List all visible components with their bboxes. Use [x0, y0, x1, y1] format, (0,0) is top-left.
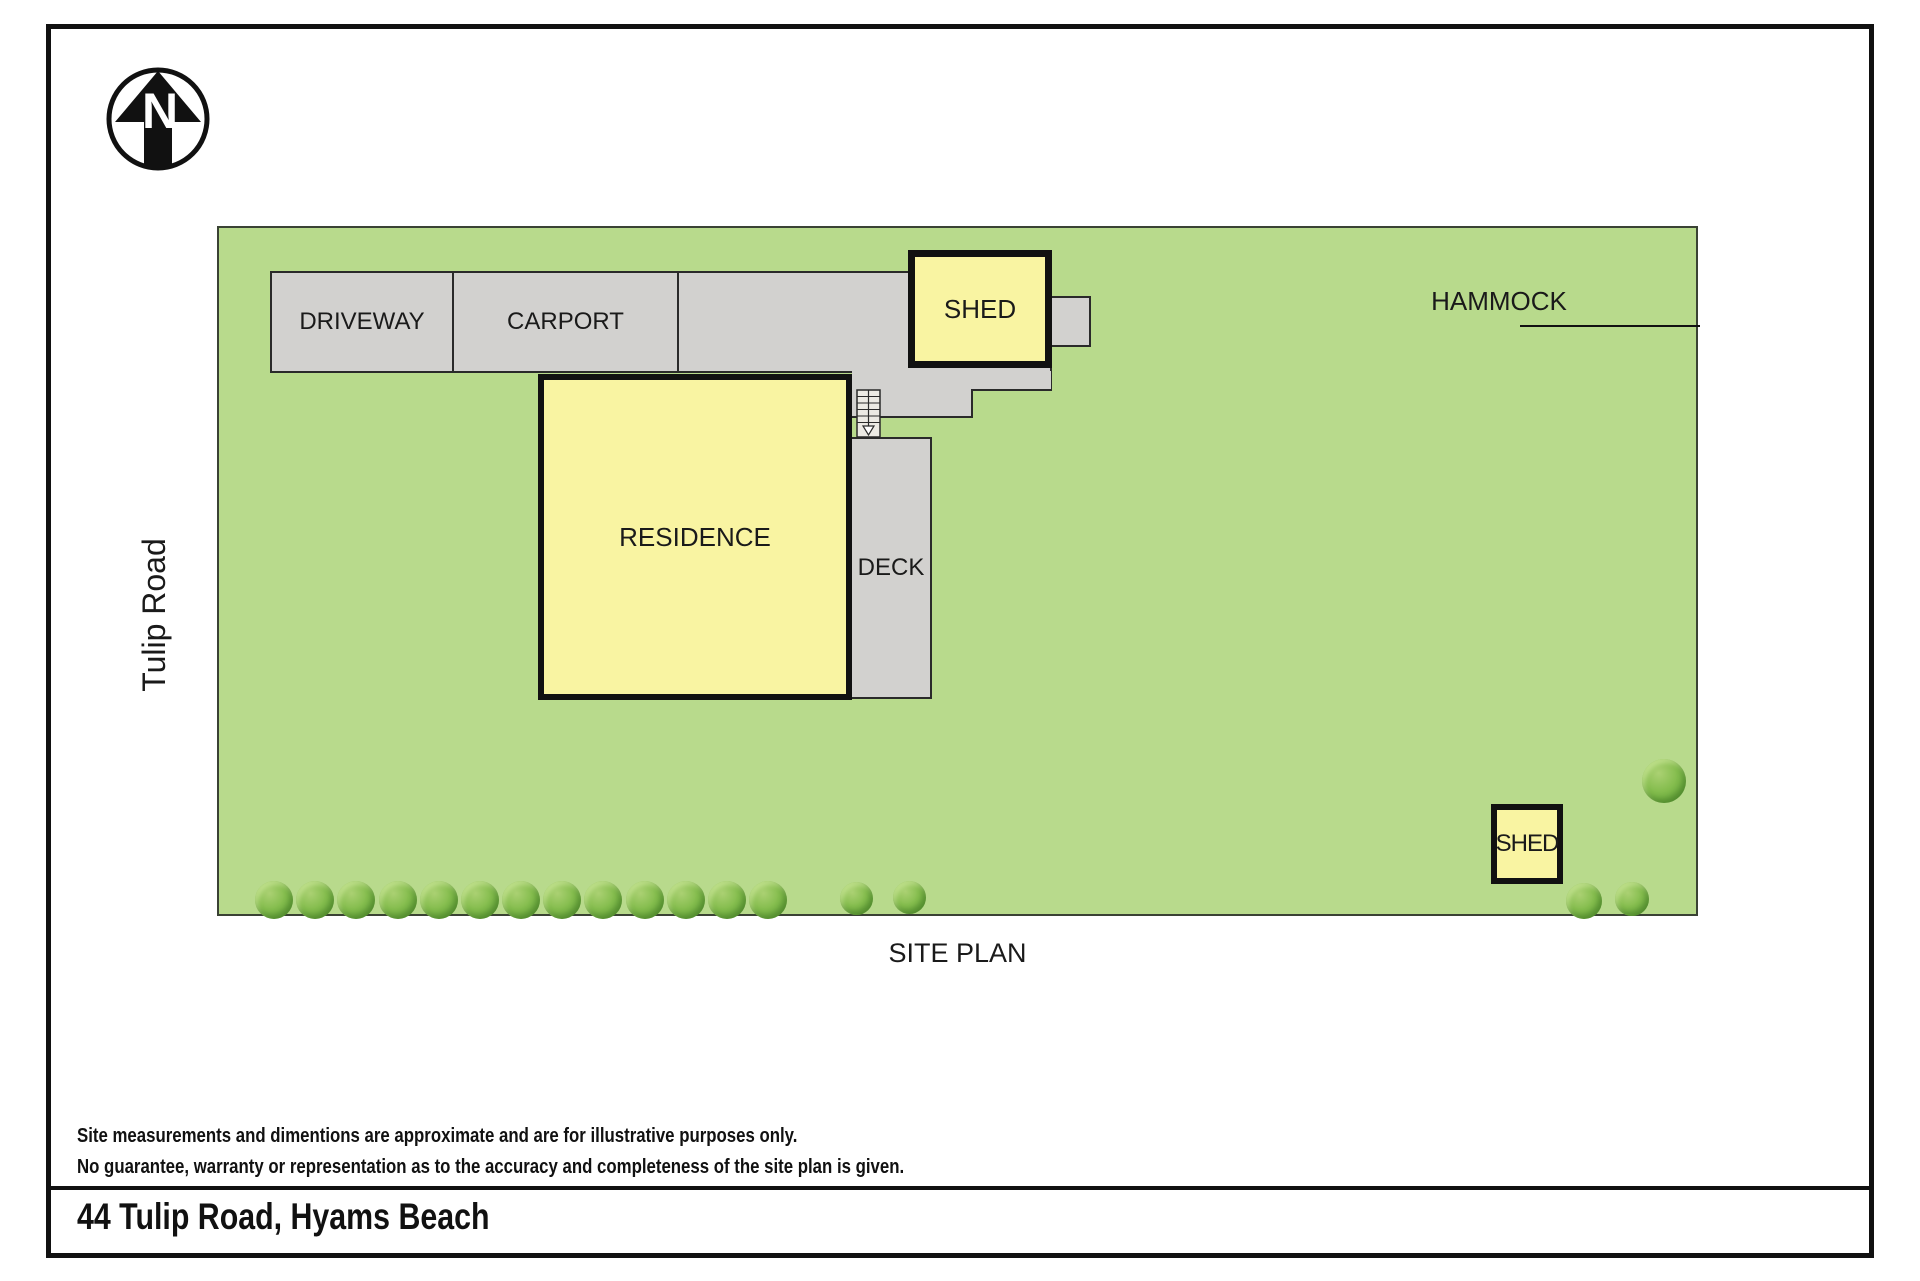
tree-icon	[1642, 759, 1686, 803]
shed-bottom-area: SHED	[1491, 804, 1563, 884]
tree-icon	[379, 881, 417, 919]
tree-icon	[584, 881, 622, 919]
tree-icon	[296, 881, 334, 919]
tree-icon	[1566, 883, 1602, 919]
north-arrow-icon: N	[105, 66, 211, 172]
stairs-icon	[857, 390, 880, 437]
tree-icon	[840, 882, 873, 915]
tree-icon	[543, 881, 581, 919]
hammock-line	[1520, 325, 1700, 327]
tree-icon	[749, 881, 787, 919]
disclaimer-line-1: Site measurements and dimentions are app…	[77, 1121, 904, 1152]
disclaimer-text: Site measurements and dimentions are app…	[77, 1121, 904, 1183]
tree-icon	[502, 881, 540, 919]
tree-icon	[1615, 882, 1649, 916]
carport-area: CARPORT	[454, 273, 679, 371]
hammock-label: HAMMOCK	[1399, 286, 1599, 316]
property-address: 44 Tulip Road, Hyams Beach	[77, 1196, 490, 1238]
tree-icon	[461, 881, 499, 919]
shed-top-area: SHED	[908, 250, 1052, 368]
paved-platform	[852, 371, 1052, 437]
tree-icon	[420, 881, 458, 919]
tree-icon	[667, 881, 705, 919]
disclaimer-line-2: No guarantee, warranty or representation…	[77, 1152, 904, 1183]
tree-icon	[708, 881, 746, 919]
residence-area: RESIDENCE	[538, 374, 852, 700]
site-plan-page: N Tulip Road DRIVEWAY CARPORT	[0, 0, 1920, 1281]
tree-icon	[337, 881, 375, 919]
tree-icon	[255, 881, 293, 919]
plan-caption: SITE PLAN	[217, 938, 1698, 969]
driveway-area: DRIVEWAY	[272, 273, 454, 371]
site-lot: DRIVEWAY CARPORT SHED DECK RESIDENCE SH	[217, 226, 1698, 916]
shed-annex	[1050, 296, 1091, 347]
tree-icon	[893, 881, 926, 914]
tree-icon	[626, 881, 664, 919]
road-name: Tulip Road	[136, 515, 176, 715]
north-letter: N	[142, 83, 178, 139]
footer-divider	[47, 1186, 1873, 1190]
deck-area: DECK	[850, 437, 932, 699]
